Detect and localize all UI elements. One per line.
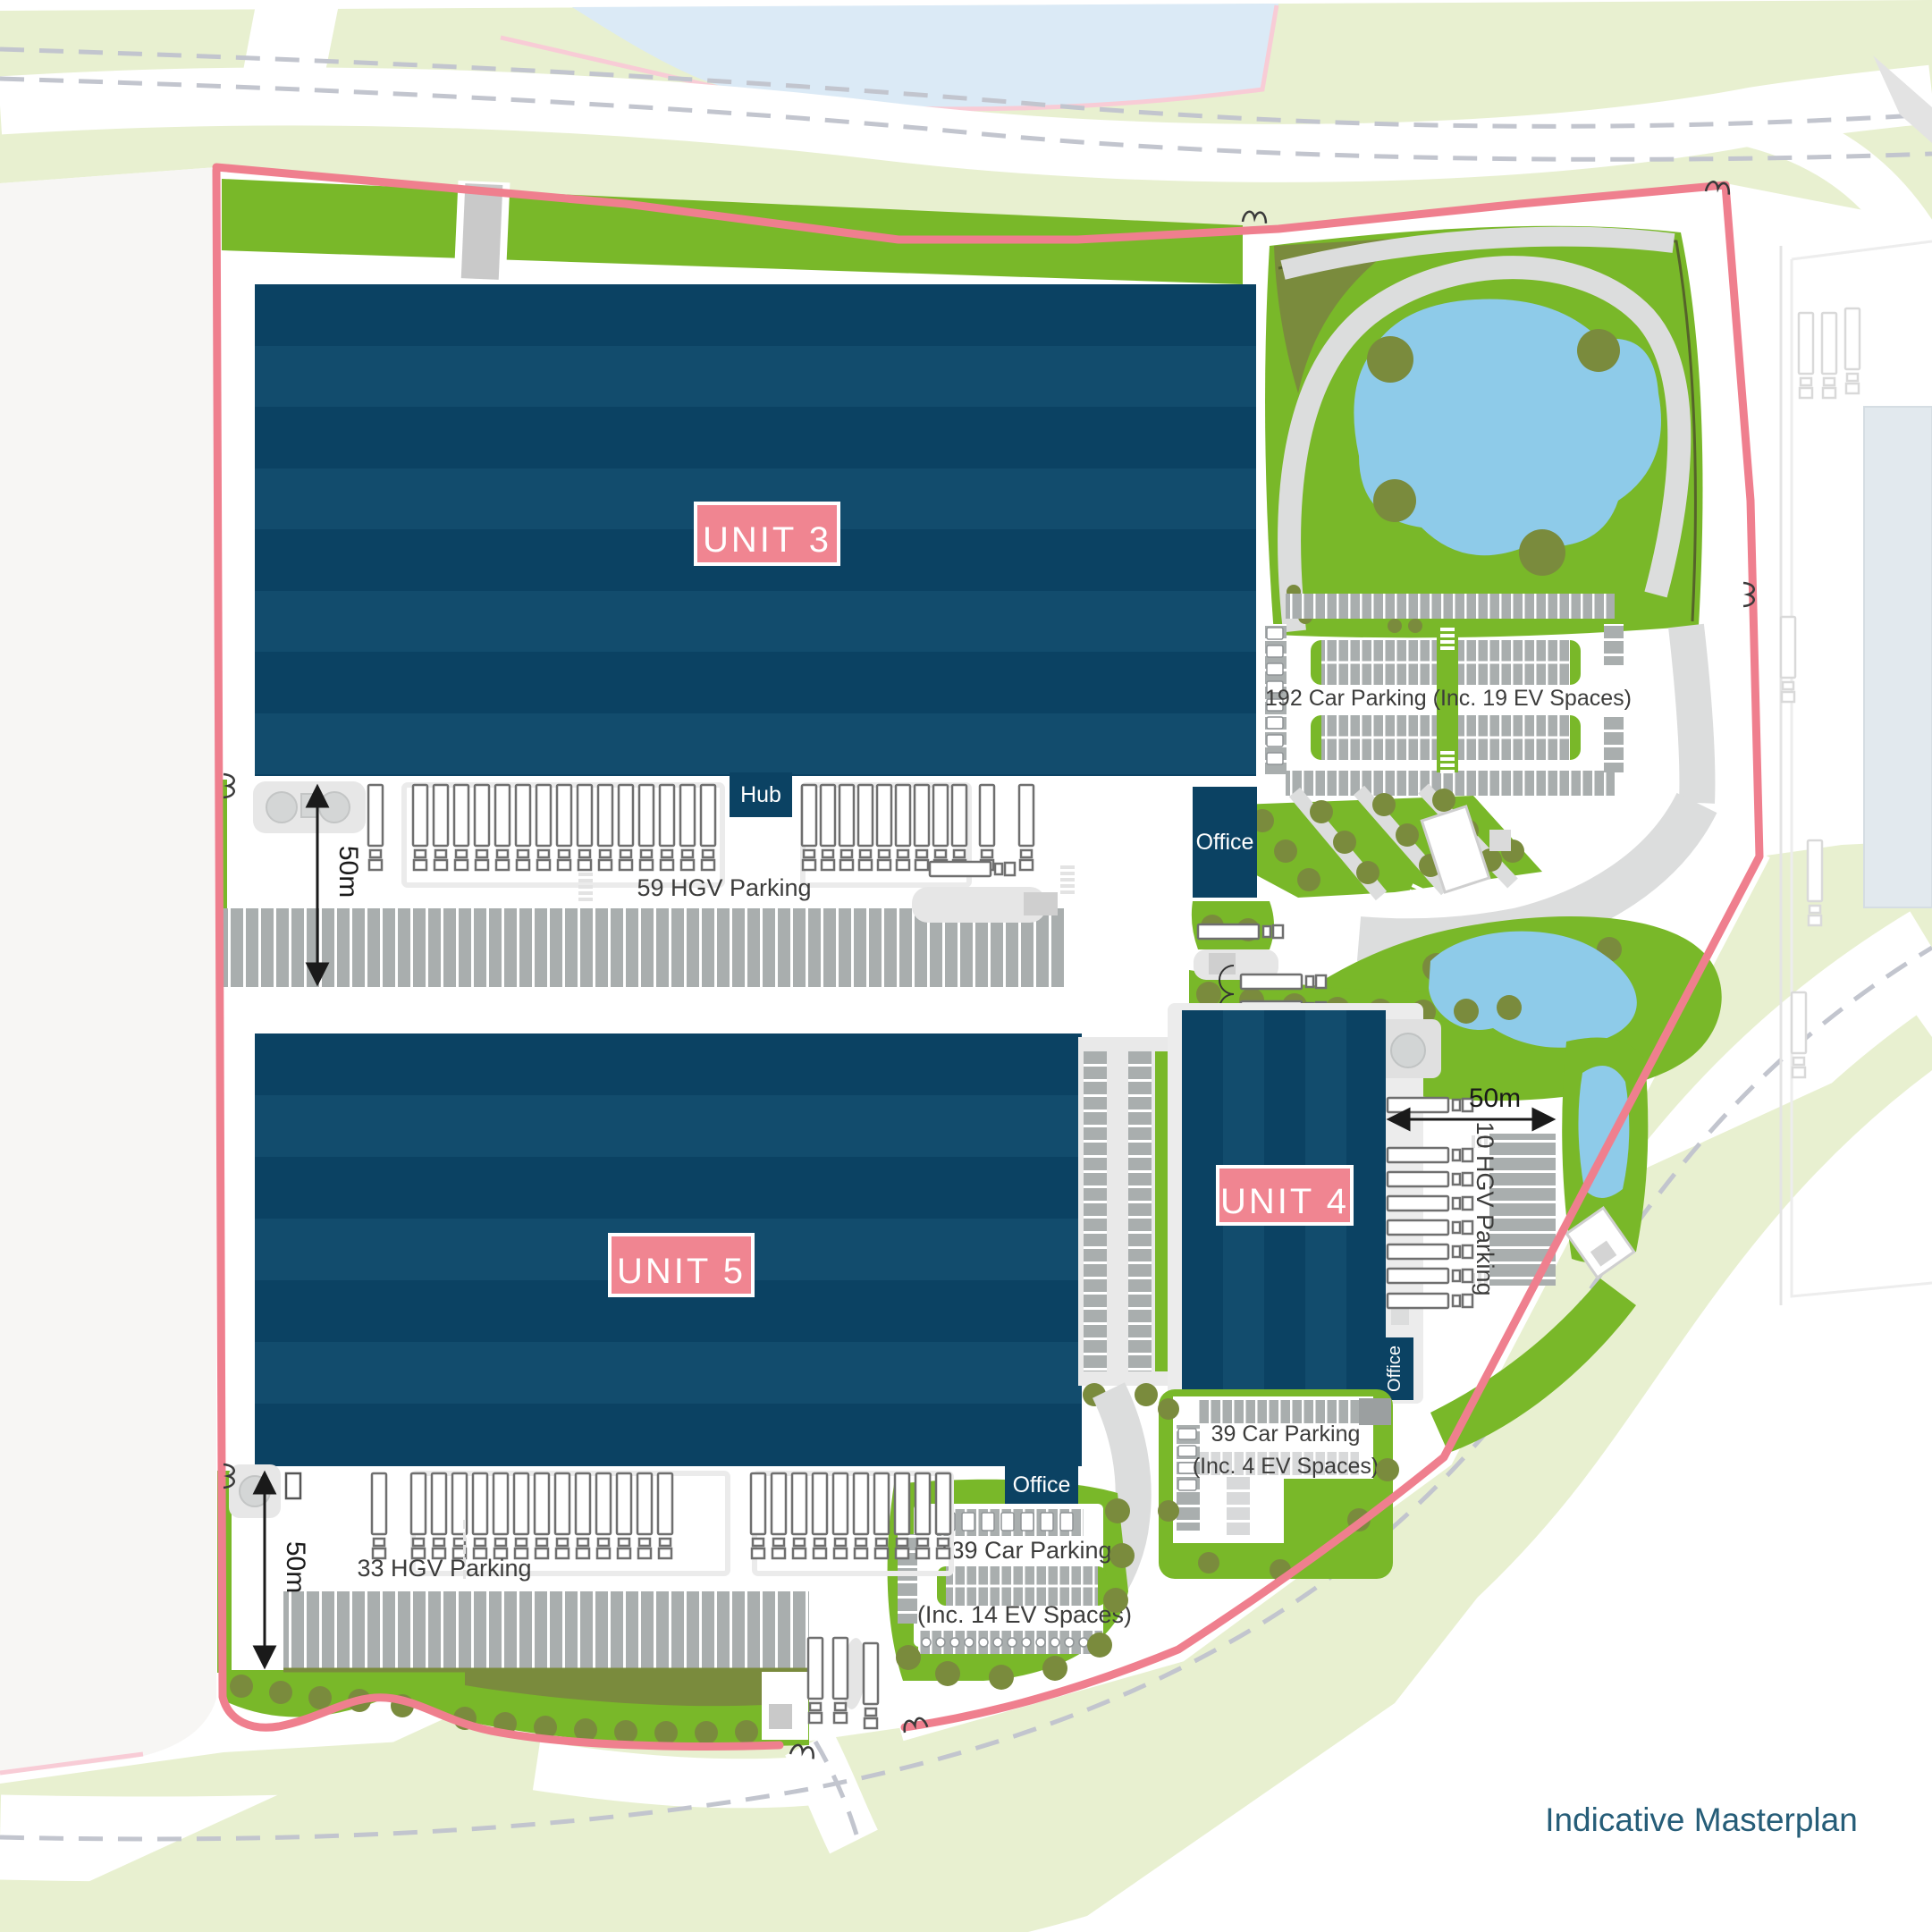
label-car-139-line1: 139 Car Parking bbox=[937, 1537, 1111, 1564]
svg-text:50m: 50m bbox=[1469, 1084, 1521, 1113]
unit3-block: UNIT 3 bbox=[255, 284, 1256, 776]
svg-text:50m: 50m bbox=[281, 1541, 310, 1593]
office-unit5-label: Office bbox=[1013, 1472, 1071, 1498]
label-car-192: 192 Car Parking (Inc. 19 EV Spaces) bbox=[1265, 686, 1632, 711]
offsite-west-field bbox=[0, 167, 216, 1775]
label-hgv-10: 10 HGV Parking bbox=[1472, 1121, 1498, 1295]
unit5-block: UNIT 5 bbox=[255, 1033, 1082, 1466]
label-car-39-line2: (Inc. 4 EV Spaces) bbox=[1193, 1454, 1379, 1479]
car-park-39: 39 Car Parking (Inc. 4 EV Spaces) bbox=[1158, 1389, 1399, 1581]
label-hgv-59: 59 HGV Parking bbox=[637, 874, 811, 901]
hgv-strip-unit5 bbox=[283, 1591, 809, 1670]
unit5-label: UNIT 5 bbox=[617, 1252, 746, 1291]
accessible-icons-139 bbox=[942, 1513, 1073, 1531]
car-park-unit5-east bbox=[1078, 1037, 1173, 1406]
hub-label: Hub bbox=[740, 782, 781, 807]
label-hgv-33: 33 HGV Parking bbox=[357, 1555, 531, 1582]
office-unit3-label: Office bbox=[1196, 830, 1254, 855]
plan-caption: Indicative Masterplan bbox=[1545, 1801, 1858, 1838]
svg-text:50m: 50m bbox=[333, 846, 363, 898]
unit4-label: UNIT 4 bbox=[1220, 1182, 1349, 1221]
south-entrance bbox=[808, 1637, 878, 1728]
unit3-label: UNIT 3 bbox=[703, 520, 831, 560]
masterplan-canvas: 192 Car Parking (Inc. 19 EV Spaces) bbox=[0, 0, 1932, 1932]
label-car-139-line2: (Inc. 14 EV Spaces) bbox=[917, 1601, 1132, 1628]
office-unit4-label: Office bbox=[1385, 1346, 1405, 1392]
label-car-39-line1: 39 Car Parking bbox=[1211, 1422, 1361, 1447]
hgv-trucks-unit5 bbox=[372, 1473, 950, 1558]
attenuation-pond-park bbox=[1265, 226, 1702, 638]
